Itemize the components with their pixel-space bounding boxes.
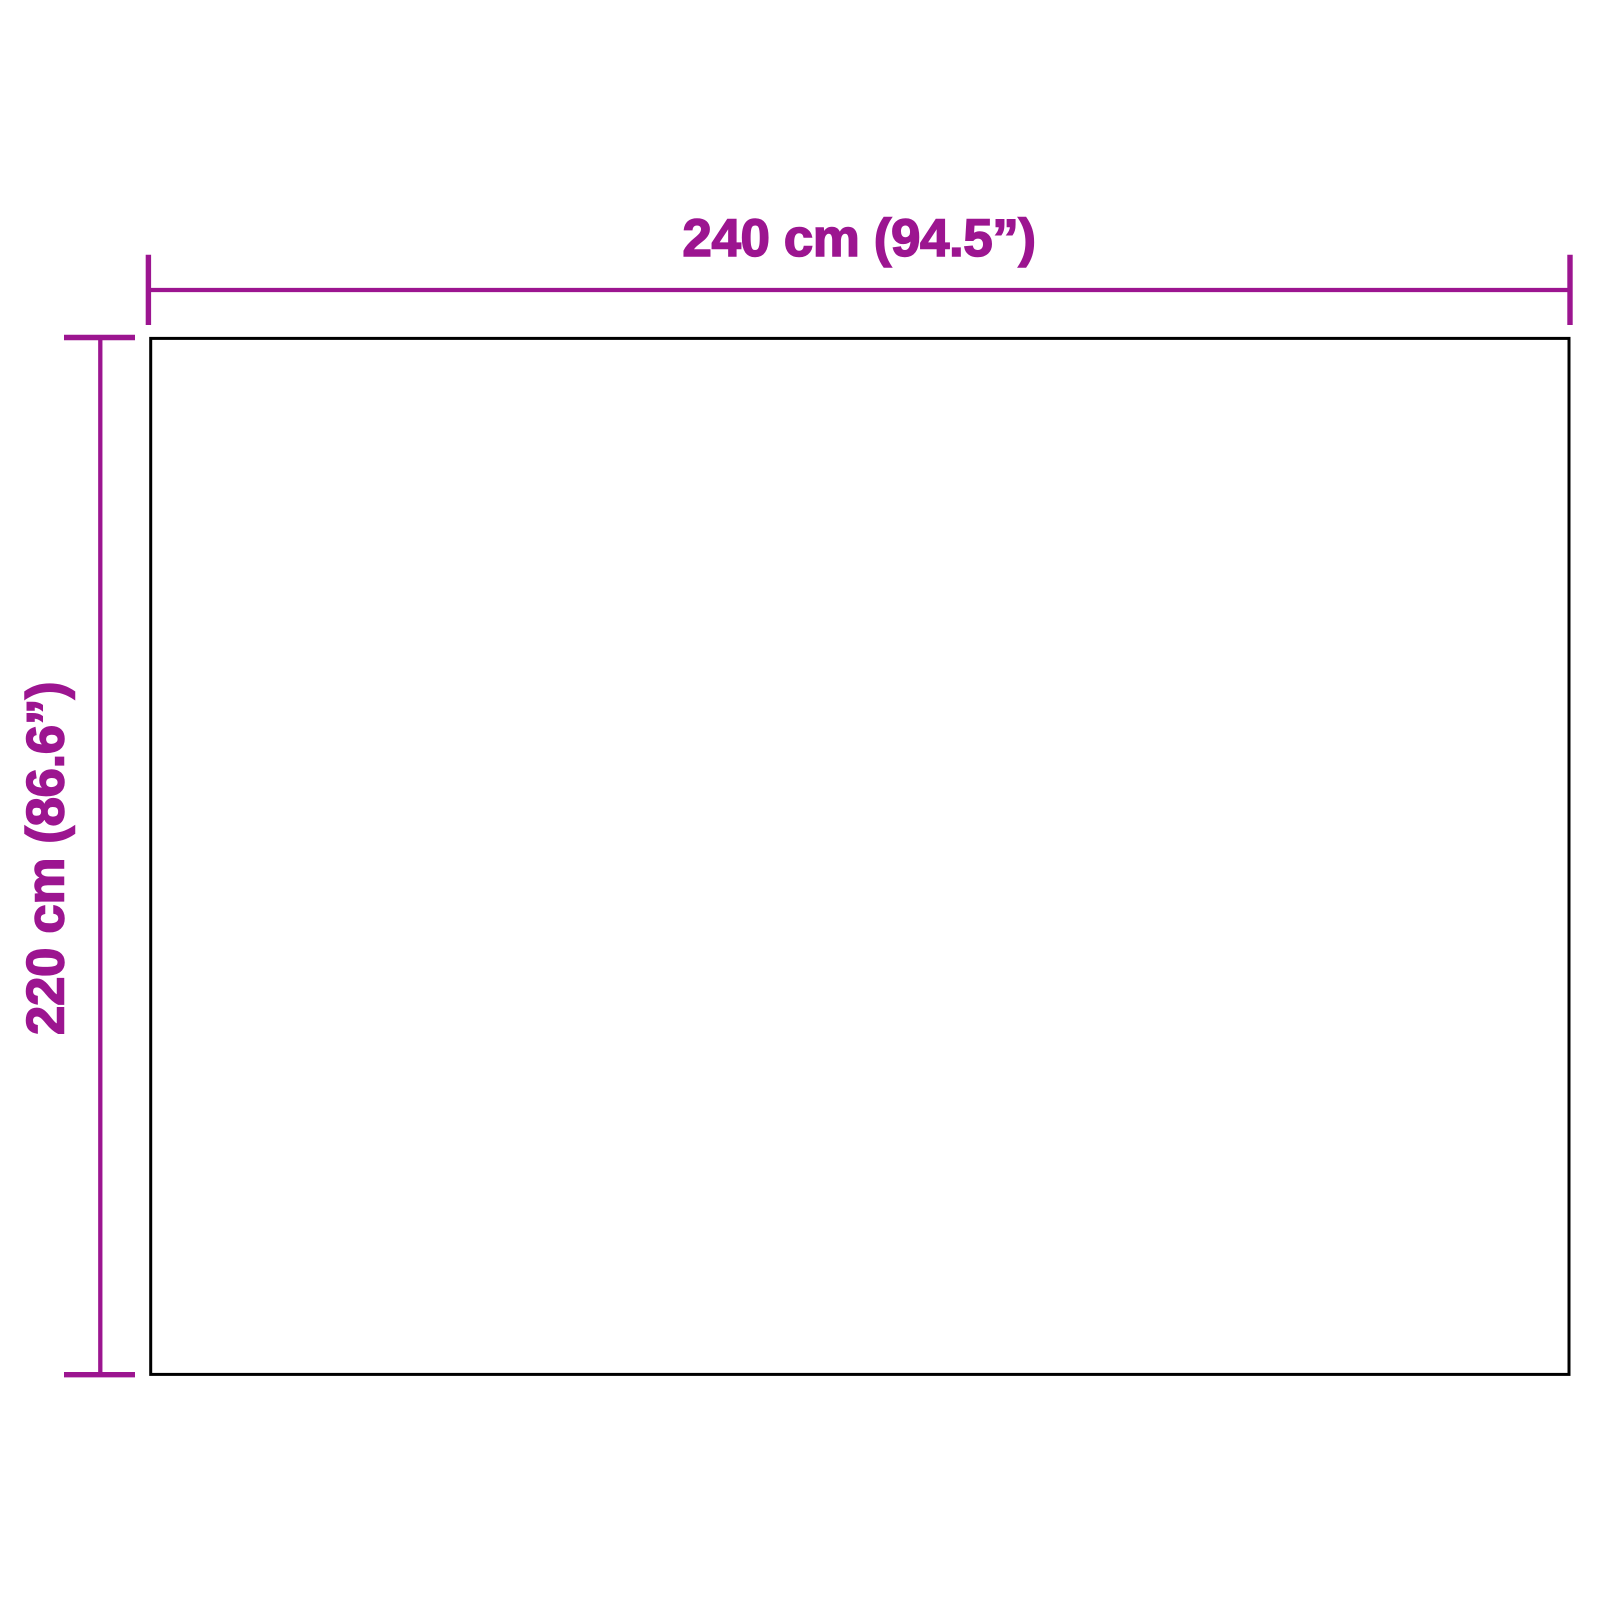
svg-text:220 cm (86.6”): 220 cm (86.6”) <box>16 682 75 1035</box>
svg-text:240 cm (94.5”): 240 cm (94.5”) <box>682 209 1035 268</box>
